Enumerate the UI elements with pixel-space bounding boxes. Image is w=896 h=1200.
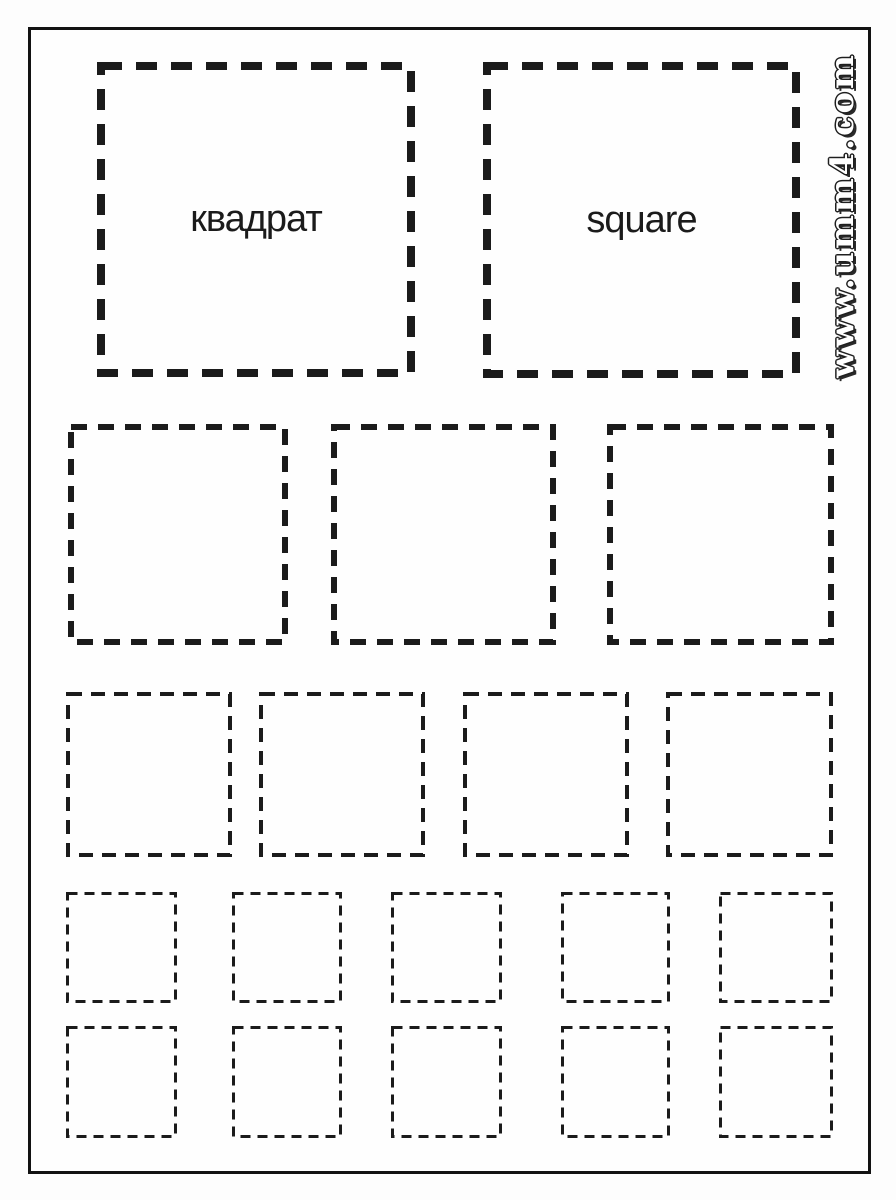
trace-square-small-3 bbox=[463, 692, 629, 857]
worksheet-scan: { "labels": { "russian": "квадрат", "eng… bbox=[0, 0, 896, 1200]
trace-square-tiny-r2-3 bbox=[391, 1026, 502, 1138]
trace-square-small-2 bbox=[259, 692, 425, 857]
trace-square-small-4 bbox=[666, 692, 833, 857]
trace-square-tiny-r2-2 bbox=[232, 1026, 342, 1138]
watermark-text: www.umm4.com bbox=[823, 52, 861, 378]
trace-square-medium-1 bbox=[68, 424, 288, 645]
trace-square-tiny-r2-1 bbox=[66, 1026, 177, 1138]
trace-square-tiny-r1-5 bbox=[719, 892, 833, 1003]
worksheet-page: квадрат square www.umm4.com bbox=[0, 0, 896, 1200]
trace-square-tiny-r1-4 bbox=[561, 892, 670, 1003]
trace-square-medium-3 bbox=[607, 424, 834, 645]
trace-square-tiny-r1-2 bbox=[232, 892, 342, 1003]
trace-square-large-russian: квадрат bbox=[97, 62, 415, 377]
trace-square-tiny-r2-5 bbox=[719, 1026, 833, 1138]
trace-square-tiny-r2-4 bbox=[561, 1026, 670, 1138]
trace-square-small-1 bbox=[66, 692, 232, 857]
trace-square-tiny-r1-1 bbox=[66, 892, 177, 1003]
trace-square-tiny-r1-3 bbox=[391, 892, 502, 1003]
trace-square-medium-2 bbox=[331, 424, 556, 645]
trace-square-large-english: square bbox=[483, 62, 800, 378]
